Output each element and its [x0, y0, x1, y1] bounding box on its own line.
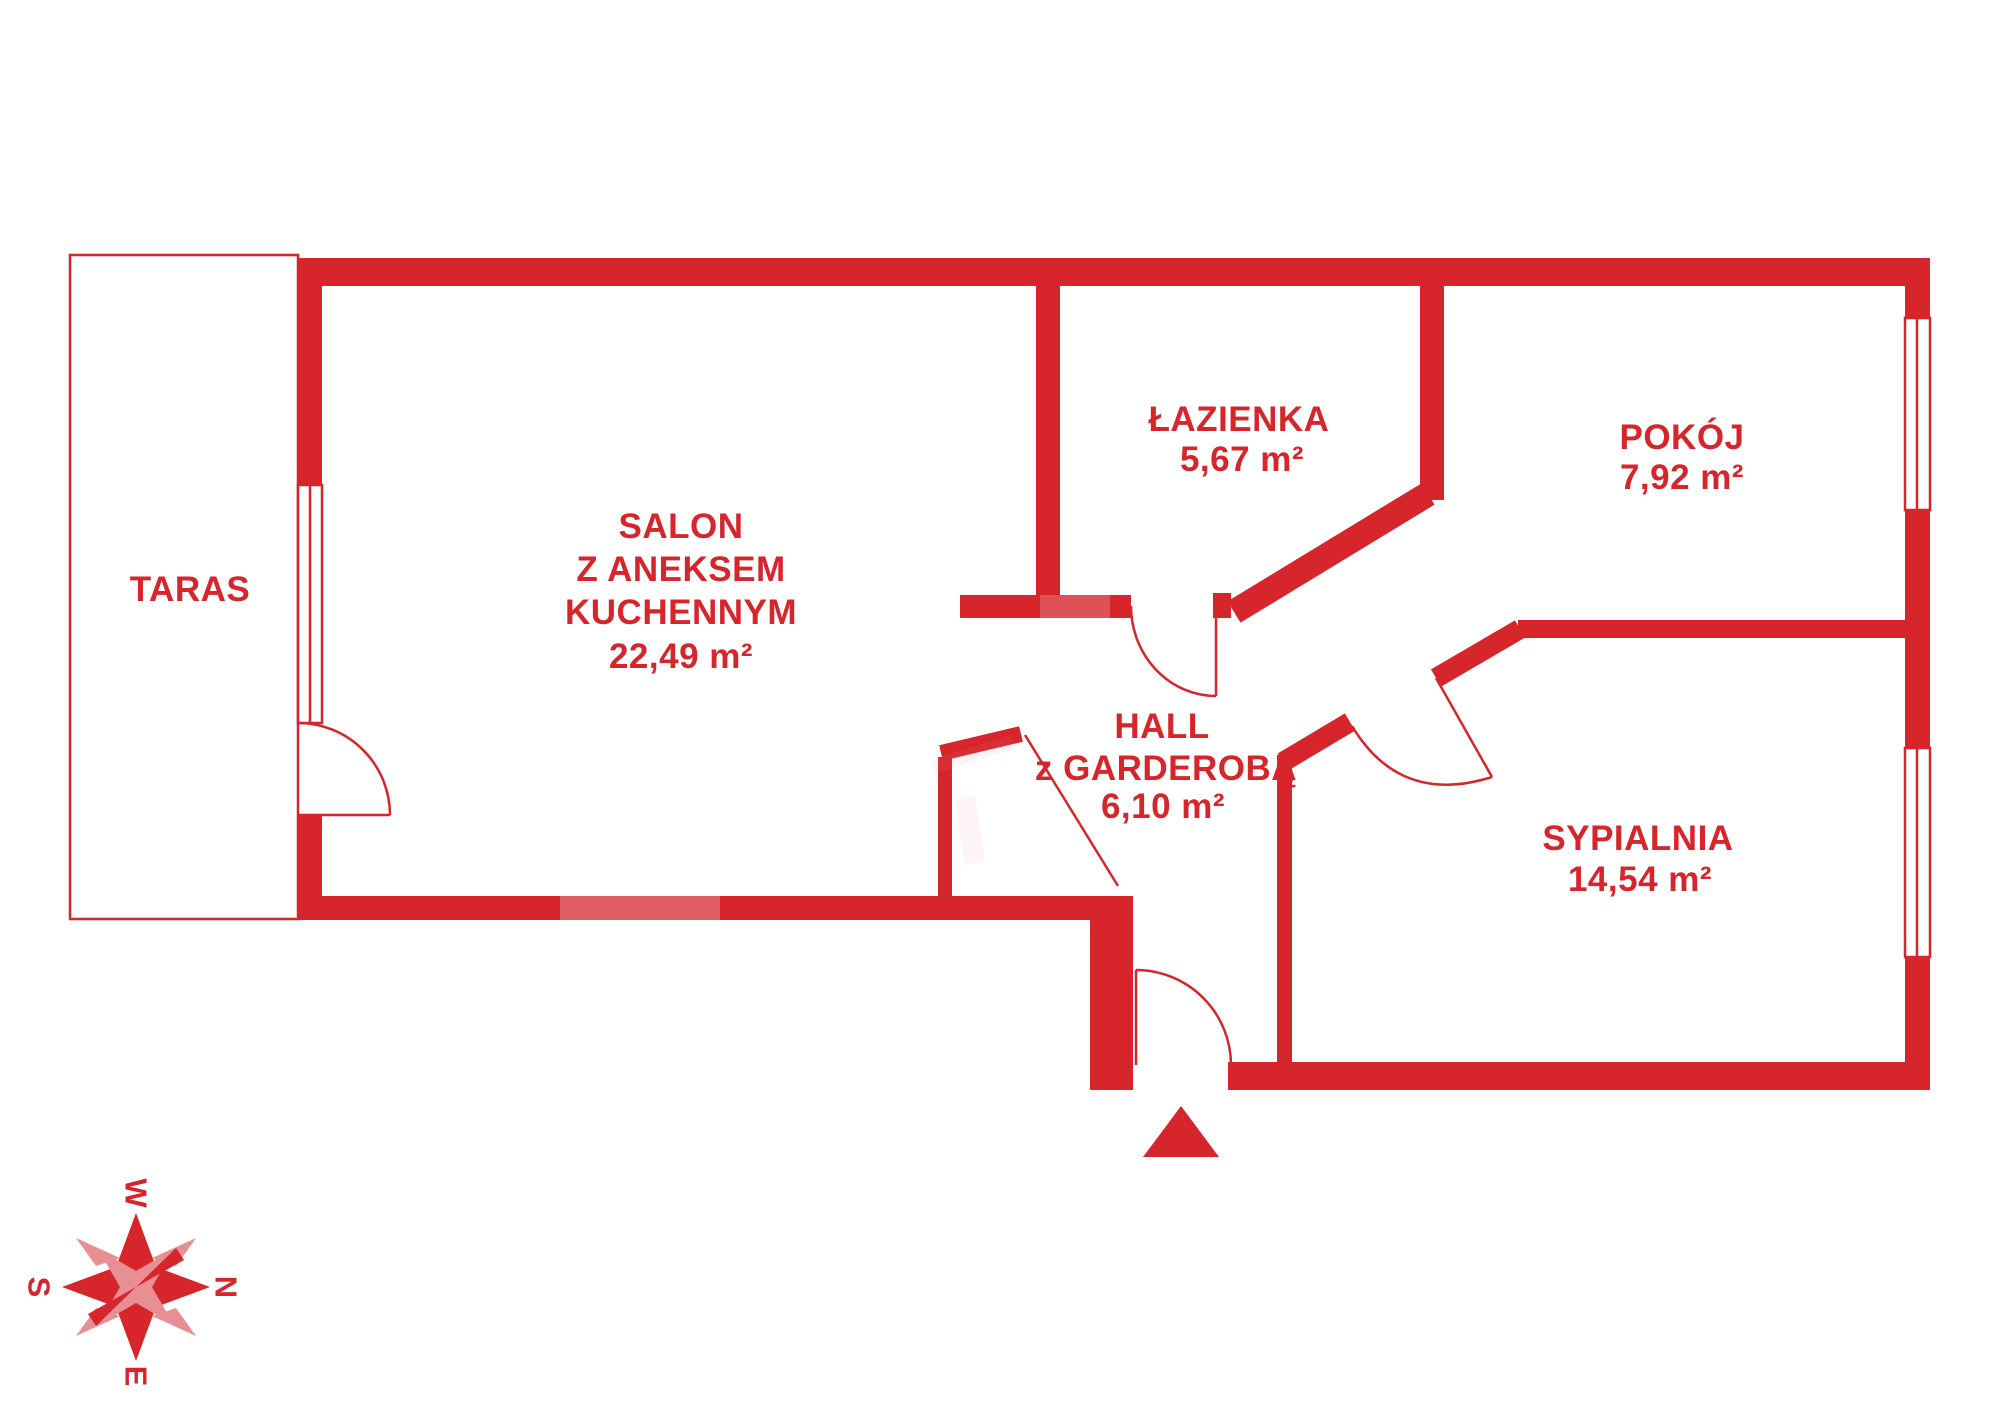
entrance-arrow-icon [1143, 1106, 1219, 1157]
compass-label-south: S [22, 1277, 57, 1298]
wall-bathroom-left [1036, 286, 1060, 618]
label-taras: TARAS [130, 570, 250, 609]
floor-plan-drawing: TARAS SALON Z ANEKSEM KUCHENNYM 22,49 m²… [0, 0, 2000, 1416]
wall-entrance-left [1090, 896, 1133, 1090]
wall-bottom-right [1228, 1062, 1928, 1090]
door-terrace [298, 723, 390, 815]
label-salon-area: 22,49 m² [609, 637, 753, 676]
window-sypialnia-right [1905, 748, 1930, 957]
label-pokoj: POKÓJ [1619, 417, 1744, 457]
wall-left-upper [298, 258, 322, 485]
label-hall-area: 6,10 m² [1101, 787, 1225, 826]
wall-bathroom-diagonal [1234, 494, 1428, 612]
window-pokoj-right [1905, 318, 1930, 510]
label-hall-1: HALL [1114, 707, 1209, 746]
label-sypialnia: SYPIALNIA [1542, 819, 1733, 858]
compass-rose: W N S E [22, 1178, 244, 1386]
label-salon-3: KUCHENNYM [565, 593, 797, 632]
floor-plan-page: TARAS SALON Z ANEKSEM KUCHENNYM 22,49 m²… [0, 0, 2000, 1416]
label-pokoj-area: 7,92 m² [1620, 458, 1744, 497]
wall-wardrobe-partition [938, 757, 952, 897]
window-salon-left [298, 485, 322, 723]
wall-right-2 [1905, 510, 1930, 748]
wall-sypialnia-left [1277, 755, 1292, 1062]
wall-sypialnia-nw-diagonal [1436, 629, 1520, 678]
door-sypialnia [1352, 678, 1492, 785]
wall-right-1 [1905, 258, 1930, 318]
compass-label-east: E [119, 1366, 154, 1387]
label-salon-2: Z ANEKSEM [576, 550, 785, 589]
door-entrance [1136, 970, 1231, 1065]
label-lazienka: ŁAZIENKA [1149, 400, 1330, 439]
wall-right-3 [1905, 957, 1930, 1090]
compass-label-north: N [209, 1276, 244, 1298]
label-sypialnia-area: 14,54 m² [1568, 860, 1712, 899]
label-lazienka-area: 5,67 m² [1180, 440, 1304, 479]
compass-label-west: W [119, 1178, 154, 1208]
walls [298, 258, 1930, 1090]
label-salon-1: SALON [619, 507, 744, 546]
label-hall-2: z GARDEROBĄ [1035, 749, 1297, 788]
doors [298, 606, 1492, 1065]
door-bathroom [1131, 606, 1216, 696]
wall-top [298, 258, 1930, 286]
wall-pokoj-sypialnia-divider [1518, 620, 1905, 638]
wall-pokoj-left [1420, 286, 1444, 500]
